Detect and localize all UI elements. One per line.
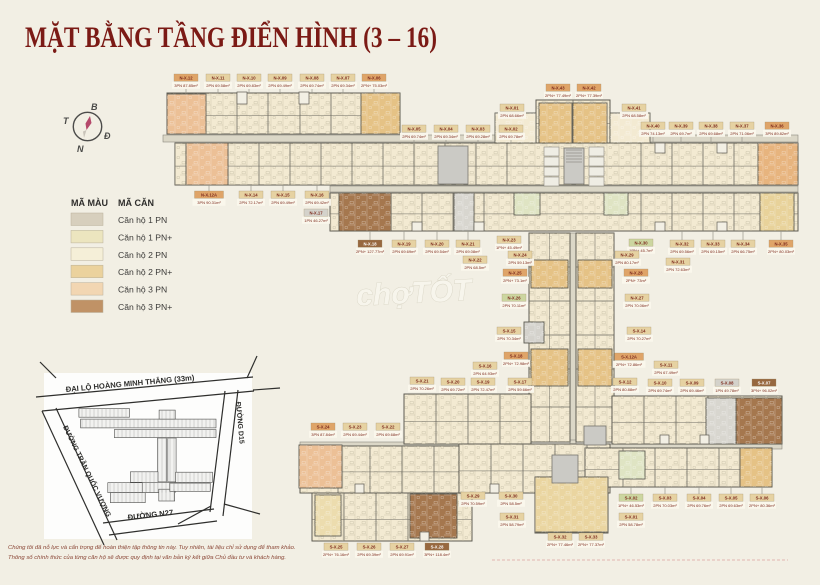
svg-text:2PN 74.13m²: 2PN 74.13m² — [641, 131, 665, 136]
svg-text:2PN+ 72.98m²: 2PN+ 72.98m² — [503, 361, 530, 366]
svg-text:N-X.42: N-X.42 — [582, 85, 596, 90]
svg-text:2PN 68.5m²: 2PN 68.5m² — [464, 265, 486, 270]
svg-text:S-X.14: S-X.14 — [633, 328, 646, 333]
svg-text:N-X.04: N-X.04 — [439, 126, 453, 131]
svg-text:1PN 46.27m²: 1PN 46.27m² — [304, 218, 328, 223]
svg-text:N-X.34: N-X.34 — [736, 241, 750, 246]
svg-text:2PN 70.59m²: 2PN 70.59m² — [461, 501, 485, 506]
svg-text:1PN+ 46.53m²: 1PN+ 46.53m² — [618, 503, 645, 508]
svg-text:2PN 72.63m²: 2PN 72.63m² — [666, 267, 690, 272]
svg-text:MÃ MÀU: MÃ MÀU — [71, 198, 108, 208]
svg-text:N-X.28: N-X.28 — [629, 270, 643, 275]
svg-text:2PN 68.58m²: 2PN 68.58m² — [622, 113, 646, 118]
svg-text:MÃ CĂN: MÃ CĂN — [118, 198, 154, 208]
svg-text:S-X.29: S-X.29 — [467, 493, 480, 498]
svg-text:S-X.22: S-X.22 — [382, 424, 395, 429]
svg-text:1PN+ 45.49m²: 1PN+ 45.49m² — [496, 245, 523, 250]
svg-text:N-X.03: N-X.03 — [471, 126, 485, 131]
svg-text:S-X.33: S-X.33 — [585, 534, 598, 539]
svg-text:2PN 69.15m²: 2PN 69.15m² — [701, 249, 725, 254]
svg-text:Căn hộ 3 PN: Căn hộ 3 PN — [118, 285, 167, 295]
svg-text:2PN 80.17m²: 2PN 80.17m² — [615, 260, 639, 265]
svg-text:2PN 69.74m²: 2PN 69.74m² — [648, 388, 672, 393]
svg-text:S-X.07: S-X.07 — [758, 380, 771, 385]
svg-text:N-X.31: N-X.31 — [671, 259, 685, 264]
svg-text:Căn hộ 1 PN: Căn hộ 1 PN — [118, 215, 167, 225]
svg-text:S-X.10: S-X.10 — [654, 380, 667, 385]
svg-text:N-X.01: N-X.01 — [505, 105, 519, 110]
svg-text:S-X.03: S-X.03 — [659, 495, 672, 500]
svg-text:2PN 69.74m²: 2PN 69.74m² — [402, 134, 426, 139]
svg-text:N-X.12: N-X.12 — [179, 75, 193, 80]
svg-text:2PN+ 75.03m²: 2PN+ 75.03m² — [361, 83, 388, 88]
svg-text:2PN+ 80.36m²: 2PN+ 80.36m² — [749, 503, 776, 508]
svg-text:2PN 69.68m²: 2PN 69.68m² — [376, 432, 400, 437]
svg-text:N-X.30: N-X.30 — [634, 240, 648, 245]
svg-text:2PN 69.83m²: 2PN 69.83m² — [237, 83, 261, 88]
svg-text:N-X.06: N-X.06 — [367, 75, 381, 80]
svg-text:S-X.08: S-X.08 — [721, 380, 734, 385]
svg-text:2PN+ 77.49m²: 2PN+ 77.49m² — [545, 93, 572, 98]
svg-text:2PN 69.74m²: 2PN 69.74m² — [300, 83, 324, 88]
svg-text:2PN 72.47m²: 2PN 72.47m² — [471, 387, 495, 392]
svg-text:2PN 70.11m²: 2PN 70.11m² — [502, 303, 526, 308]
svg-text:2PN 69.28m²: 2PN 69.28m² — [466, 134, 490, 139]
svg-text:2PN 70.34m²: 2PN 70.34m² — [497, 336, 521, 341]
svg-text:N-X.17: N-X.17 — [309, 210, 323, 215]
svg-text:N: N — [77, 144, 84, 154]
svg-text:Căn hộ 2 PN+: Căn hộ 2 PN+ — [118, 267, 172, 277]
svg-text:Căn hộ 1 PN+: Căn hộ 1 PN+ — [118, 232, 172, 242]
svg-text:Thông số chính thức của từng c: Thông số chính thức của từng căn hộ sẽ đ… — [8, 554, 286, 561]
svg-text:2PN 69.49m²: 2PN 69.49m² — [268, 83, 292, 88]
svg-text:S-X.21: S-X.21 — [416, 378, 429, 383]
svg-text:N-X.11: N-X.11 — [212, 75, 225, 80]
svg-text:2PN 69.69m²: 2PN 69.69m² — [392, 249, 416, 254]
svg-text:N-X.24: N-X.24 — [513, 252, 527, 257]
svg-text:N-X.27: N-X.27 — [630, 295, 644, 300]
svg-text:3PN 87.85m²: 3PN 87.85m² — [174, 83, 198, 88]
svg-text:N-X.18: N-X.18 — [363, 241, 377, 246]
svg-text:N-X.10: N-X.10 — [242, 75, 256, 80]
svg-text:2PN+ 73.1m²: 2PN+ 73.1m² — [503, 278, 527, 283]
svg-text:2PN 70.26m²: 2PN 70.26m² — [410, 386, 434, 391]
svg-text:N-X.20: N-X.20 — [430, 241, 444, 246]
svg-text:2PN 67.49m²: 2PN 67.49m² — [654, 370, 678, 375]
svg-text:N-X.23: N-X.23 — [502, 237, 516, 242]
svg-text:N-X.29: N-X.29 — [620, 252, 634, 257]
svg-text:2PN 71.06m²: 2PN 71.06m² — [730, 131, 754, 136]
svg-text:2PN 70.27m²: 2PN 70.27m² — [627, 336, 651, 341]
svg-text:3PN 89.82m²: 3PN 89.82m² — [765, 131, 789, 136]
svg-text:2PN 69.46m²: 2PN 69.46m² — [680, 388, 704, 393]
svg-text:S-X.09: S-X.09 — [686, 380, 699, 385]
svg-text:2PN 69.63m²: 2PN 69.63m² — [719, 503, 743, 508]
svg-text:2PN 69.58m²: 2PN 69.58m² — [206, 83, 230, 88]
svg-text:2PN 72.17m²: 2PN 72.17m² — [239, 200, 263, 205]
svg-text:N-X.39: N-X.39 — [674, 123, 688, 128]
svg-text:N-X.25: N-X.25 — [508, 270, 522, 275]
svg-text:2PN 69.91m²: 2PN 69.91m² — [390, 552, 414, 557]
svg-text:N-X.02: N-X.02 — [504, 126, 518, 131]
svg-text:2PN 59.66m²: 2PN 59.66m² — [508, 387, 532, 392]
svg-text:S-X.28: S-X.28 — [431, 544, 444, 549]
svg-text:1PN 49.78m²: 1PN 49.78m² — [715, 388, 739, 393]
svg-text:N-X.19: N-X.19 — [397, 241, 411, 246]
svg-text:S-X.05: S-X.05 — [725, 495, 738, 500]
svg-text:2PN 59.13m²: 2PN 59.13m² — [508, 260, 532, 265]
svg-text:S-X.11: S-X.11 — [660, 362, 673, 367]
svg-text:2PN 66.75m²: 2PN 66.75m² — [731, 249, 755, 254]
svg-text:2PN 69.7m²: 2PN 69.7m² — [670, 131, 692, 136]
svg-text:2PN 80.88m²: 2PN 80.88m² — [613, 387, 637, 392]
svg-text:S-X.18: S-X.18 — [510, 353, 523, 358]
svg-text:S-X.06: S-X.06 — [756, 495, 769, 500]
svg-text:2PN 58.79m²: 2PN 58.79m² — [500, 522, 524, 527]
svg-text:2PN 69.42m²: 2PN 69.42m² — [305, 200, 329, 205]
svg-text:3PN+ 96.02m²: 3PN+ 96.02m² — [751, 388, 778, 393]
svg-text:N-X.43: N-X.43 — [551, 85, 565, 90]
svg-text:S-X.26: S-X.26 — [363, 544, 376, 549]
svg-text:2PN+ 77.39m²: 2PN+ 77.39m² — [576, 93, 603, 98]
svg-text:S-X.04: S-X.04 — [693, 495, 706, 500]
svg-text:B: B — [91, 102, 98, 112]
svg-text:S-X.25: S-X.25 — [330, 544, 343, 549]
svg-text:N-X.22: N-X.22 — [468, 257, 482, 262]
svg-text:N-X.09: N-X.09 — [273, 75, 287, 80]
svg-text:2PN+ 80.03m²: 2PN+ 80.03m² — [768, 249, 795, 254]
svg-text:S-X.17: S-X.17 — [514, 379, 527, 384]
svg-text:2PN 70.03m²: 2PN 70.03m² — [653, 503, 677, 508]
svg-text:S-X.32: S-X.32 — [554, 534, 567, 539]
svg-text:Chúng tôi đã nỗ lực và cẩn trọ: Chúng tôi đã nỗ lực và cẩn trọng để hoàn… — [8, 544, 296, 551]
svg-text:2PN 69.08m²: 2PN 69.08m² — [456, 249, 480, 254]
svg-text:2PN 69.54m²: 2PN 69.54m² — [425, 249, 449, 254]
svg-text:2PN 69.72m²: 2PN 69.72m² — [441, 387, 465, 392]
svg-text:S-X.24: S-X.24 — [317, 424, 330, 429]
svg-text:S-X.01: S-X.01 — [625, 514, 638, 519]
svg-text:S-X.12A: S-X.12A — [621, 354, 637, 359]
svg-text:2PN+ 72.86m²: 2PN+ 72.86m² — [616, 362, 643, 367]
svg-text:N-X.07: N-X.07 — [336, 75, 350, 80]
svg-text:2PN 70.06m²: 2PN 70.06m² — [625, 303, 649, 308]
svg-text:N-X.26: N-X.26 — [507, 295, 521, 300]
svg-text:Căn hộ 3 PN+: Căn hộ 3 PN+ — [118, 302, 172, 312]
svg-text:N-X.32: N-X.32 — [675, 241, 689, 246]
svg-text:S-X.02: S-X.02 — [625, 495, 638, 500]
svg-text:N-X.36: N-X.36 — [770, 123, 784, 128]
svg-text:2PN 69.68m²: 2PN 69.68m² — [699, 131, 723, 136]
svg-text:N-X.12A: N-X.12A — [201, 192, 217, 197]
svg-text:2PN 58.78m²: 2PN 58.78m² — [619, 522, 643, 527]
svg-text:2PN 69.78m²: 2PN 69.78m² — [499, 134, 523, 139]
svg-text:2PN 69.44m²: 2PN 69.44m² — [343, 432, 367, 437]
svg-text:2PN 69.39m²: 2PN 69.39m² — [357, 552, 381, 557]
svg-text:S-X.19: S-X.19 — [477, 379, 490, 384]
svg-text:2PN 64.93m²: 2PN 64.93m² — [473, 371, 497, 376]
svg-text:2PN 69.76m²: 2PN 69.76m² — [687, 503, 711, 508]
svg-text:chợTỐT: chợTỐT — [355, 273, 474, 313]
svg-text:N-X.40: N-X.40 — [646, 123, 660, 128]
svg-text:S-X.15: S-X.15 — [503, 328, 516, 333]
svg-text:N-X.41: N-X.41 — [627, 105, 641, 110]
svg-text:N-X.08: N-X.08 — [305, 75, 319, 80]
svg-text:2PN 68.66m²: 2PN 68.66m² — [500, 113, 524, 118]
svg-text:N-X.14: N-X.14 — [244, 192, 258, 197]
svg-text:Căn hộ 2 PN: Căn hộ 2 PN — [118, 250, 167, 260]
svg-text:3PN 87.84m²: 3PN 87.84m² — [311, 432, 335, 437]
svg-text:S-X.16: S-X.16 — [479, 363, 492, 368]
svg-text:N-X.16: N-X.16 — [310, 192, 324, 197]
svg-text:2PN+ 77.37m²: 2PN+ 77.37m² — [578, 542, 605, 547]
svg-text:N-X.38: N-X.38 — [704, 123, 718, 128]
svg-text:2PN 69.34m²: 2PN 69.34m² — [434, 134, 458, 139]
svg-text:S-X.31: S-X.31 — [506, 514, 519, 519]
svg-text:S-X.20: S-X.20 — [447, 379, 460, 384]
svg-text:N-X.21: N-X.21 — [461, 241, 475, 246]
svg-text:S-X.30: S-X.30 — [505, 493, 518, 498]
svg-text:2PN 69.34m²: 2PN 69.34m² — [331, 83, 355, 88]
svg-text:N-X.37: N-X.37 — [735, 123, 749, 128]
svg-text:2PN 58.5m²: 2PN 58.5m² — [500, 501, 522, 506]
svg-text:N-X.05: N-X.05 — [407, 126, 421, 131]
svg-text:MẶT BẰNG TẦNG ĐIỂN HÌNH (3 – 1: MẶT BẰNG TẦNG ĐIỂN HÌNH (3 – 16) — [25, 20, 437, 54]
svg-text:S-X.23: S-X.23 — [349, 424, 362, 429]
svg-text:N-X.35: N-X.35 — [774, 241, 788, 246]
svg-text:S-X.12: S-X.12 — [619, 379, 632, 384]
svg-text:N-X.15: N-X.15 — [276, 192, 290, 197]
svg-text:3PN 90.31m²: 3PN 90.31m² — [197, 200, 221, 205]
svg-text:2PN+ 76.16m²: 2PN+ 76.16m² — [323, 552, 350, 557]
svg-text:2PN+ 77.46m²: 2PN+ 77.46m² — [547, 542, 574, 547]
svg-text:2PN 69.56m²: 2PN 69.56m² — [670, 249, 694, 254]
svg-text:N-X.33: N-X.33 — [706, 241, 720, 246]
svg-text:2PN+ 127.77m²: 2PN+ 127.77m² — [356, 249, 385, 254]
svg-text:Đ: Đ — [104, 131, 111, 141]
svg-text:2PN 69.49m²: 2PN 69.49m² — [271, 200, 295, 205]
svg-text:3PN+ 118.4m²: 3PN+ 118.4m² — [424, 552, 450, 557]
svg-text:2PN+ 73m²: 2PN+ 73m² — [626, 278, 647, 283]
svg-text:S-X.27: S-X.27 — [396, 544, 409, 549]
